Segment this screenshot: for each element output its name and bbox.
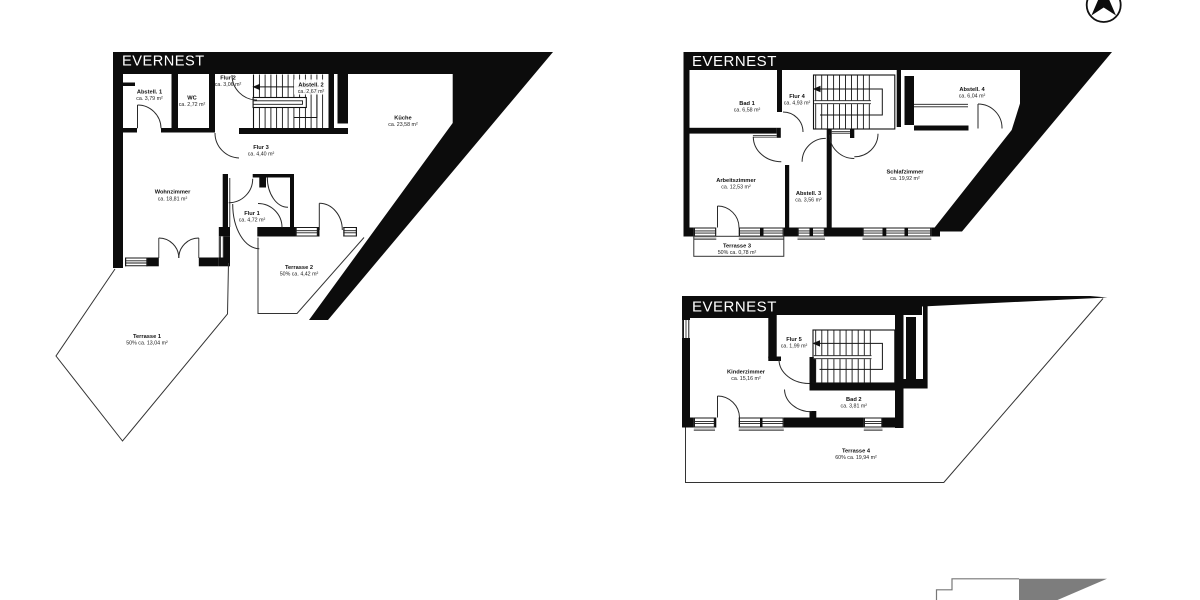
svg-text:ca. 4,72 m²: ca. 4,72 m²	[239, 218, 266, 224]
svg-text:ca. 12,53 m²: ca. 12,53 m²	[721, 185, 751, 191]
svg-text:EVERNEST: EVERNEST	[692, 299, 777, 316]
svg-text:Flur 5: Flur 5	[786, 337, 802, 343]
svg-text:Terrasse 3: Terrasse 3	[723, 244, 751, 250]
svg-text:ca. 3,81 m²: ca. 3,81 m²	[841, 404, 868, 410]
svg-text:EVERNEST: EVERNEST	[122, 54, 205, 70]
svg-text:ca. 3,79 m²: ca. 3,79 m²	[136, 96, 163, 102]
svg-text:Arbeitszimmer: Arbeitszimmer	[716, 178, 756, 184]
svg-text:50% ca. 0,78 m²: 50% ca. 0,78 m²	[718, 250, 757, 256]
svg-text:ca. 2,72 m²: ca. 2,72 m²	[179, 102, 206, 108]
svg-text:ca. 1,99 m²: ca. 1,99 m²	[781, 344, 808, 350]
svg-text:Wohnzimmer: Wohnzimmer	[155, 190, 191, 196]
svg-text:Flur 3: Flur 3	[253, 145, 269, 151]
svg-text:ca. 19,92 m²: ca. 19,92 m²	[890, 176, 920, 182]
svg-text:50% ca. 4,42 m²: 50% ca. 4,42 m²	[280, 272, 319, 278]
svg-text:Terrasse 2: Terrasse 2	[285, 265, 313, 271]
svg-text:ca. 6,04 m²: ca. 6,04 m²	[959, 94, 986, 100]
svg-text:Abstell. 2: Abstell. 2	[298, 83, 323, 89]
svg-text:ca. 3,06 m²: ca. 3,06 m²	[215, 82, 242, 88]
svg-text:ca. 23,58 m²: ca. 23,58 m²	[388, 122, 418, 128]
svg-text:ca. 4,93 m²: ca. 4,93 m²	[784, 101, 811, 107]
svg-text:ca. 4,40 m²: ca. 4,40 m²	[248, 152, 275, 158]
svg-text:Abstell. 4: Abstell. 4	[959, 87, 985, 93]
svg-text:Flur 2: Flur 2	[220, 76, 236, 82]
svg-text:Abstell. 3: Abstell. 3	[796, 191, 821, 197]
svg-text:ca. 6,58 m²: ca. 6,58 m²	[734, 108, 761, 114]
svg-text:Kinderzimmer: Kinderzimmer	[727, 370, 766, 376]
svg-text:Terrasse 4: Terrasse 4	[842, 449, 871, 455]
svg-text:Flur 1: Flur 1	[244, 211, 260, 217]
svg-text:Terrasse 1: Terrasse 1	[133, 334, 161, 340]
svg-text:Bad 2: Bad 2	[846, 397, 862, 403]
svg-text:Küche: Küche	[394, 116, 411, 122]
svg-text:Bad 1: Bad 1	[739, 101, 755, 107]
svg-text:50% ca. 13,04 m²: 50% ca. 13,04 m²	[126, 341, 168, 347]
svg-text:ca. 18,81 m²: ca. 18,81 m²	[158, 196, 188, 202]
svg-text:ca. 15,16 m²: ca. 15,16 m²	[731, 376, 761, 382]
svg-text:Schlafzimmer: Schlafzimmer	[887, 170, 925, 176]
svg-text:Abstell. 1: Abstell. 1	[137, 90, 162, 96]
svg-text:60% ca. 19,94 m²: 60% ca. 19,94 m²	[835, 455, 877, 461]
svg-text:ca. 3,56 m²: ca. 3,56 m²	[795, 198, 822, 204]
svg-text:EVERNEST: EVERNEST	[692, 53, 777, 70]
svg-text:Flur 4: Flur 4	[789, 94, 805, 100]
svg-text:WC: WC	[187, 96, 196, 102]
svg-text:ca. 2,67 m²: ca. 2,67 m²	[298, 89, 325, 95]
